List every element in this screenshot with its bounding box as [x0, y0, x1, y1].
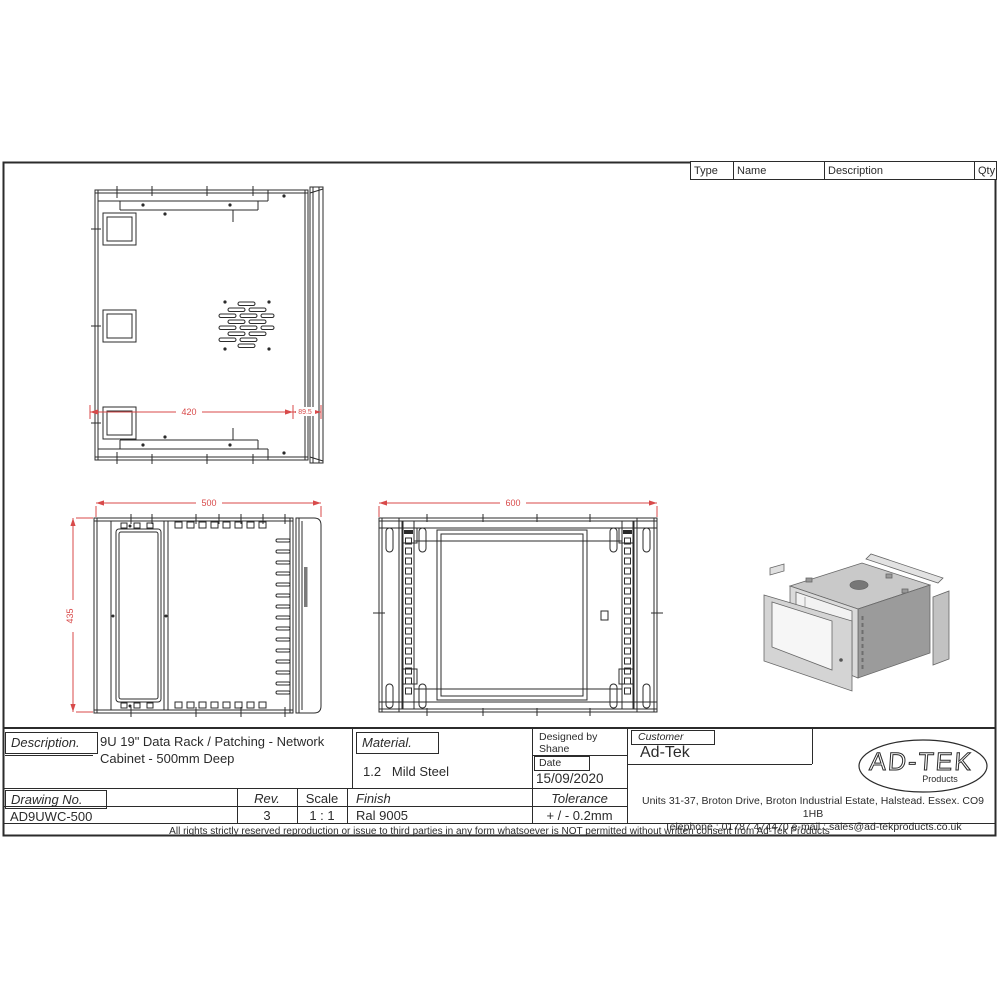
parts-header-type: Type	[694, 165, 718, 177]
customer-value: Ad-Tek	[640, 744, 690, 762]
disclaimer-text: All rights strictly reserved reproductio…	[169, 826, 830, 837]
company-logo: AD-TEK Products	[856, 737, 991, 795]
logo-sub: Products	[922, 774, 958, 784]
rack-punch-holes-right	[625, 538, 631, 694]
description-value: 9U 19" Data Rack / Patching - Network Ca…	[100, 733, 350, 767]
date-label-box: Date	[534, 756, 590, 771]
vent-slots-top	[219, 302, 274, 348]
rev-label: Rev.	[237, 790, 297, 806]
scale-label: Scale	[297, 790, 347, 806]
material-value: 1.2 Mild Steel	[363, 764, 449, 779]
dim-top-side: 89.5	[298, 409, 312, 416]
parts-header-name: Name	[737, 165, 766, 177]
parts-header-qty: Qty	[978, 165, 995, 177]
finish-value: Ral 9005	[356, 808, 408, 823]
mounting-slots	[386, 528, 650, 708]
scale-value: 1 : 1	[297, 807, 347, 823]
side-ticks	[131, 514, 285, 717]
date-label: Date	[539, 757, 561, 769]
dim-side-height: 435	[65, 608, 75, 623]
description-label-box: Description.	[5, 732, 98, 754]
vent-slots-side	[276, 539, 290, 694]
rail-squares	[175, 522, 266, 708]
parts-col-type: Type	[691, 162, 734, 179]
side-view	[94, 514, 321, 717]
title-block: Description. 9U 19" Data Rack / Patching…	[3, 727, 996, 838]
rev-value-text: 3	[263, 808, 270, 823]
description-label: Description.	[11, 735, 80, 750]
top-view	[91, 186, 323, 464]
parts-col-qty: Qty	[975, 162, 996, 179]
customer-label: Customer	[638, 731, 684, 743]
address-line1: Units 31-37, Broton Drive, Broton Indust…	[633, 795, 993, 821]
rev-value: 3	[237, 807, 297, 823]
drawing-no-label-box: Drawing No.	[5, 790, 107, 809]
drawing-no-label: Drawing No.	[11, 792, 83, 807]
tolerance-label-text: Tolerance	[551, 791, 608, 806]
parts-col-description: Description	[825, 162, 975, 179]
parts-header-description: Description	[828, 165, 883, 177]
front-ticks	[373, 514, 663, 716]
tolerance-value-text: + / - 0.2mm	[546, 808, 612, 823]
scale-label-text: Scale	[306, 791, 339, 806]
square-cutouts	[103, 213, 136, 439]
scale-value-text: 1 : 1	[309, 808, 334, 823]
isometric-view	[764, 554, 949, 691]
date-value: 15/09/2020	[536, 771, 604, 786]
screw-dots	[141, 194, 285, 454]
customer-label-box: Customer	[631, 730, 715, 745]
finish-label: Finish	[356, 791, 391, 806]
rev-label-text: Rev.	[254, 791, 280, 806]
drawing-canvas: 420 89.5	[0, 0, 1000, 1000]
front-view-dimensions: 600	[379, 498, 657, 517]
designed-by-label: Designed by	[539, 731, 597, 743]
dim-side-depth: 500	[201, 498, 216, 508]
parts-table: Type Name Description Qty	[690, 161, 997, 180]
dim-top-width: 420	[181, 407, 196, 417]
center-ticks	[91, 186, 253, 464]
logo-name: AD-TEK	[868, 748, 974, 776]
material-label: Material.	[362, 735, 412, 750]
dim-front-width: 600	[505, 498, 520, 508]
designed-by-value: Shane	[539, 743, 569, 755]
drawing-no-value: AD9UWC-500	[10, 809, 92, 824]
tolerance-value: + / - 0.2mm	[532, 807, 627, 823]
tolerance-label: Tolerance	[532, 790, 627, 806]
rack-punch-holes-left	[406, 538, 412, 694]
engineering-drawing-sheet: { "parts_table": { "headers": ["Type", "…	[0, 0, 1000, 1000]
disclaimer-strip: All rights strictly reserved reproductio…	[3, 824, 996, 838]
material-label-box: Material.	[356, 732, 439, 754]
parts-col-name: Name	[734, 162, 825, 179]
front-view	[373, 514, 663, 716]
